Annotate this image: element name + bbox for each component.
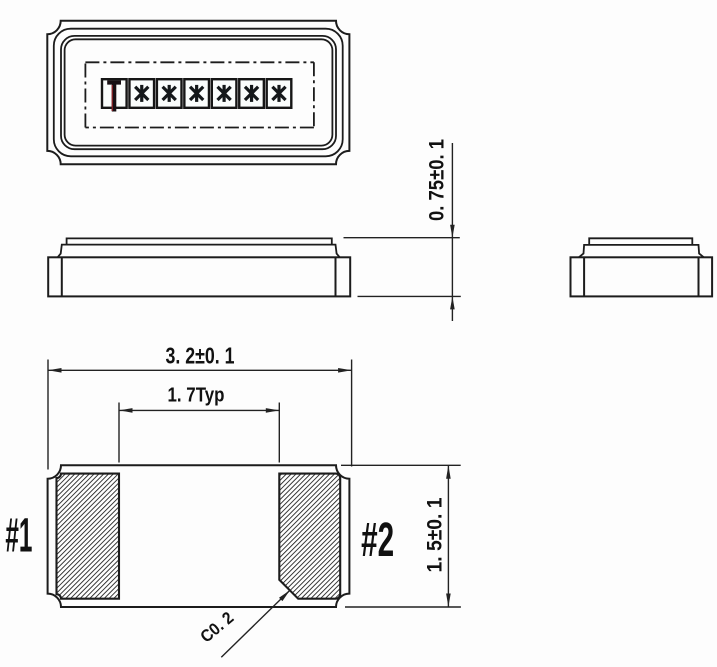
svg-text:#1: #1 [5,510,32,563]
svg-text:3. 2±0. 1: 3. 2±0. 1 [166,343,235,369]
svg-text:1. 7Typ: 1. 7Typ [168,385,225,407]
svg-text:#2: #2 [361,514,394,567]
svg-text:1. 5±0. 1: 1. 5±0. 1 [424,497,447,572]
svg-text:0. 75±0. 1: 0. 75±0. 1 [426,139,449,221]
